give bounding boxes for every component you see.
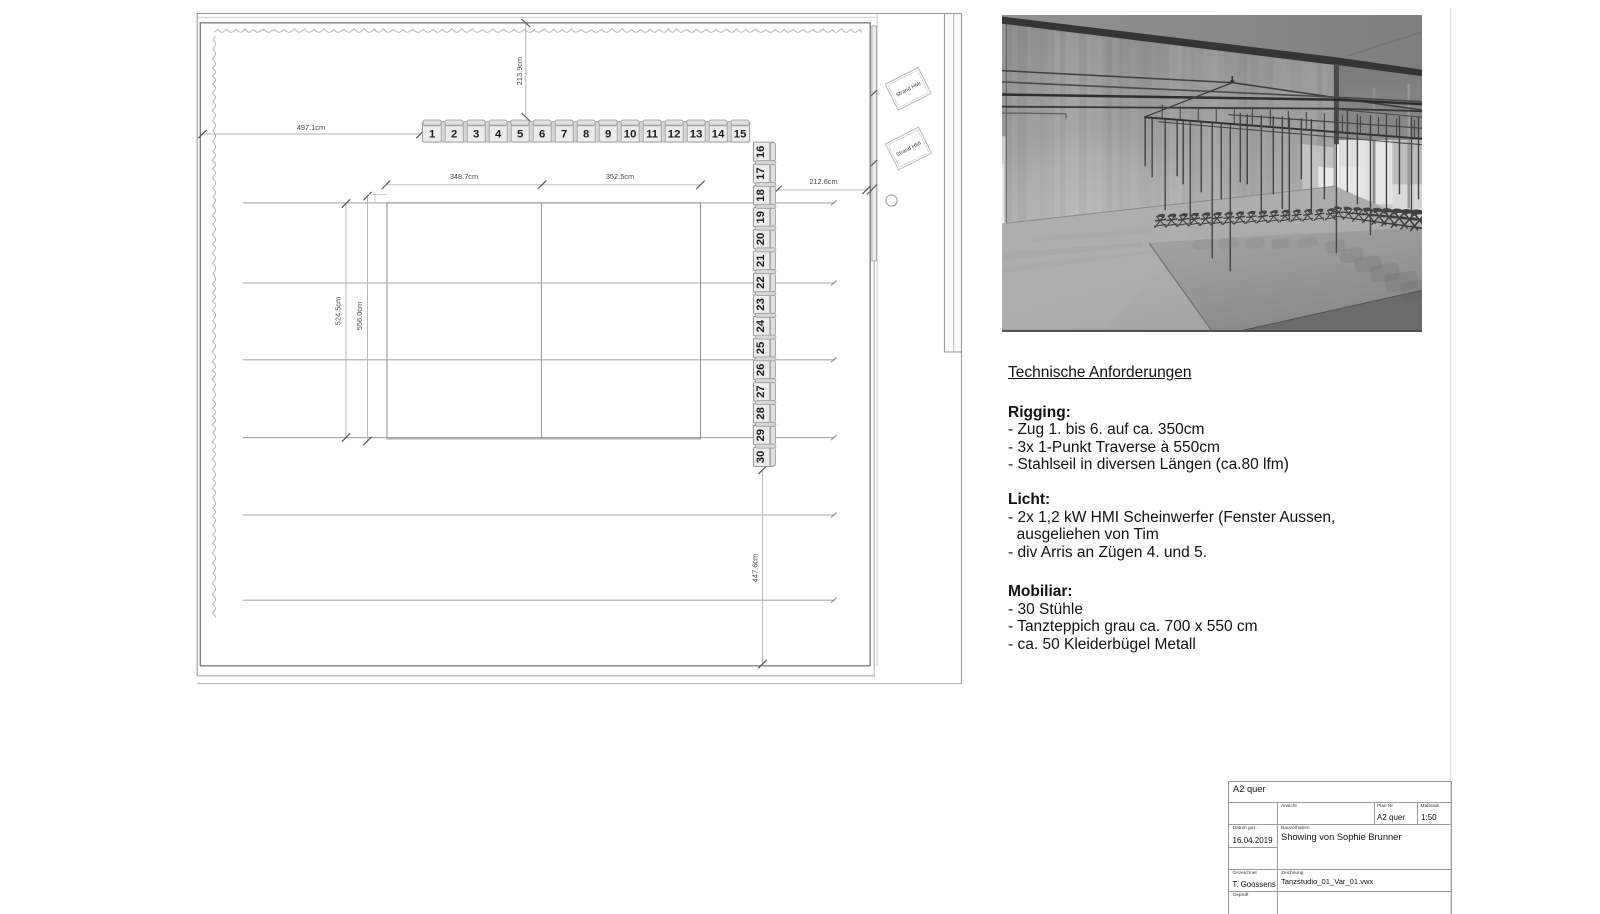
svg-text:24: 24 (755, 319, 767, 332)
svg-text:17: 17 (755, 167, 767, 180)
svg-text:556.0cm: 556.0cm (355, 302, 364, 330)
svg-text:6: 6 (539, 129, 545, 141)
svg-text:7: 7 (561, 129, 567, 141)
svg-text:524.5cm: 524.5cm (334, 297, 343, 325)
svg-text:8: 8 (583, 129, 589, 141)
svg-text:11: 11 (646, 129, 658, 141)
svg-text:27: 27 (755, 385, 767, 398)
svg-text:213.9cm: 213.9cm (515, 57, 524, 85)
svg-text:23: 23 (755, 298, 767, 311)
svg-text:28: 28 (755, 407, 767, 420)
svg-text:19: 19 (755, 211, 767, 224)
svg-text:18: 18 (755, 189, 767, 202)
svg-text:2: 2 (451, 129, 457, 141)
svg-text:3: 3 (473, 129, 479, 141)
svg-text:25: 25 (755, 342, 767, 355)
svg-text:212.6cm: 212.6cm (809, 177, 837, 186)
svg-text:22: 22 (755, 276, 767, 289)
svg-text:497.1cm: 497.1cm (297, 123, 325, 132)
svg-text:21: 21 (755, 255, 767, 268)
svg-text:20: 20 (755, 233, 767, 246)
svg-text:15: 15 (734, 129, 747, 141)
svg-text:9: 9 (605, 129, 611, 141)
svg-text:4: 4 (495, 129, 502, 141)
svg-text:13: 13 (690, 129, 703, 141)
svg-text:16: 16 (755, 146, 767, 159)
svg-text:30: 30 (755, 451, 767, 464)
svg-text:29: 29 (755, 429, 767, 442)
svg-text:447.6cm: 447.6cm (751, 554, 760, 582)
svg-text:10: 10 (624, 129, 637, 141)
svg-text:1: 1 (429, 129, 435, 141)
svg-text:12: 12 (668, 129, 681, 141)
svg-text:348.7cm: 348.7cm (450, 172, 478, 181)
svg-text:26: 26 (755, 364, 767, 377)
svg-text:14: 14 (712, 129, 725, 141)
svg-text:5: 5 (517, 129, 523, 141)
svg-text:352.5cm: 352.5cm (606, 172, 634, 181)
